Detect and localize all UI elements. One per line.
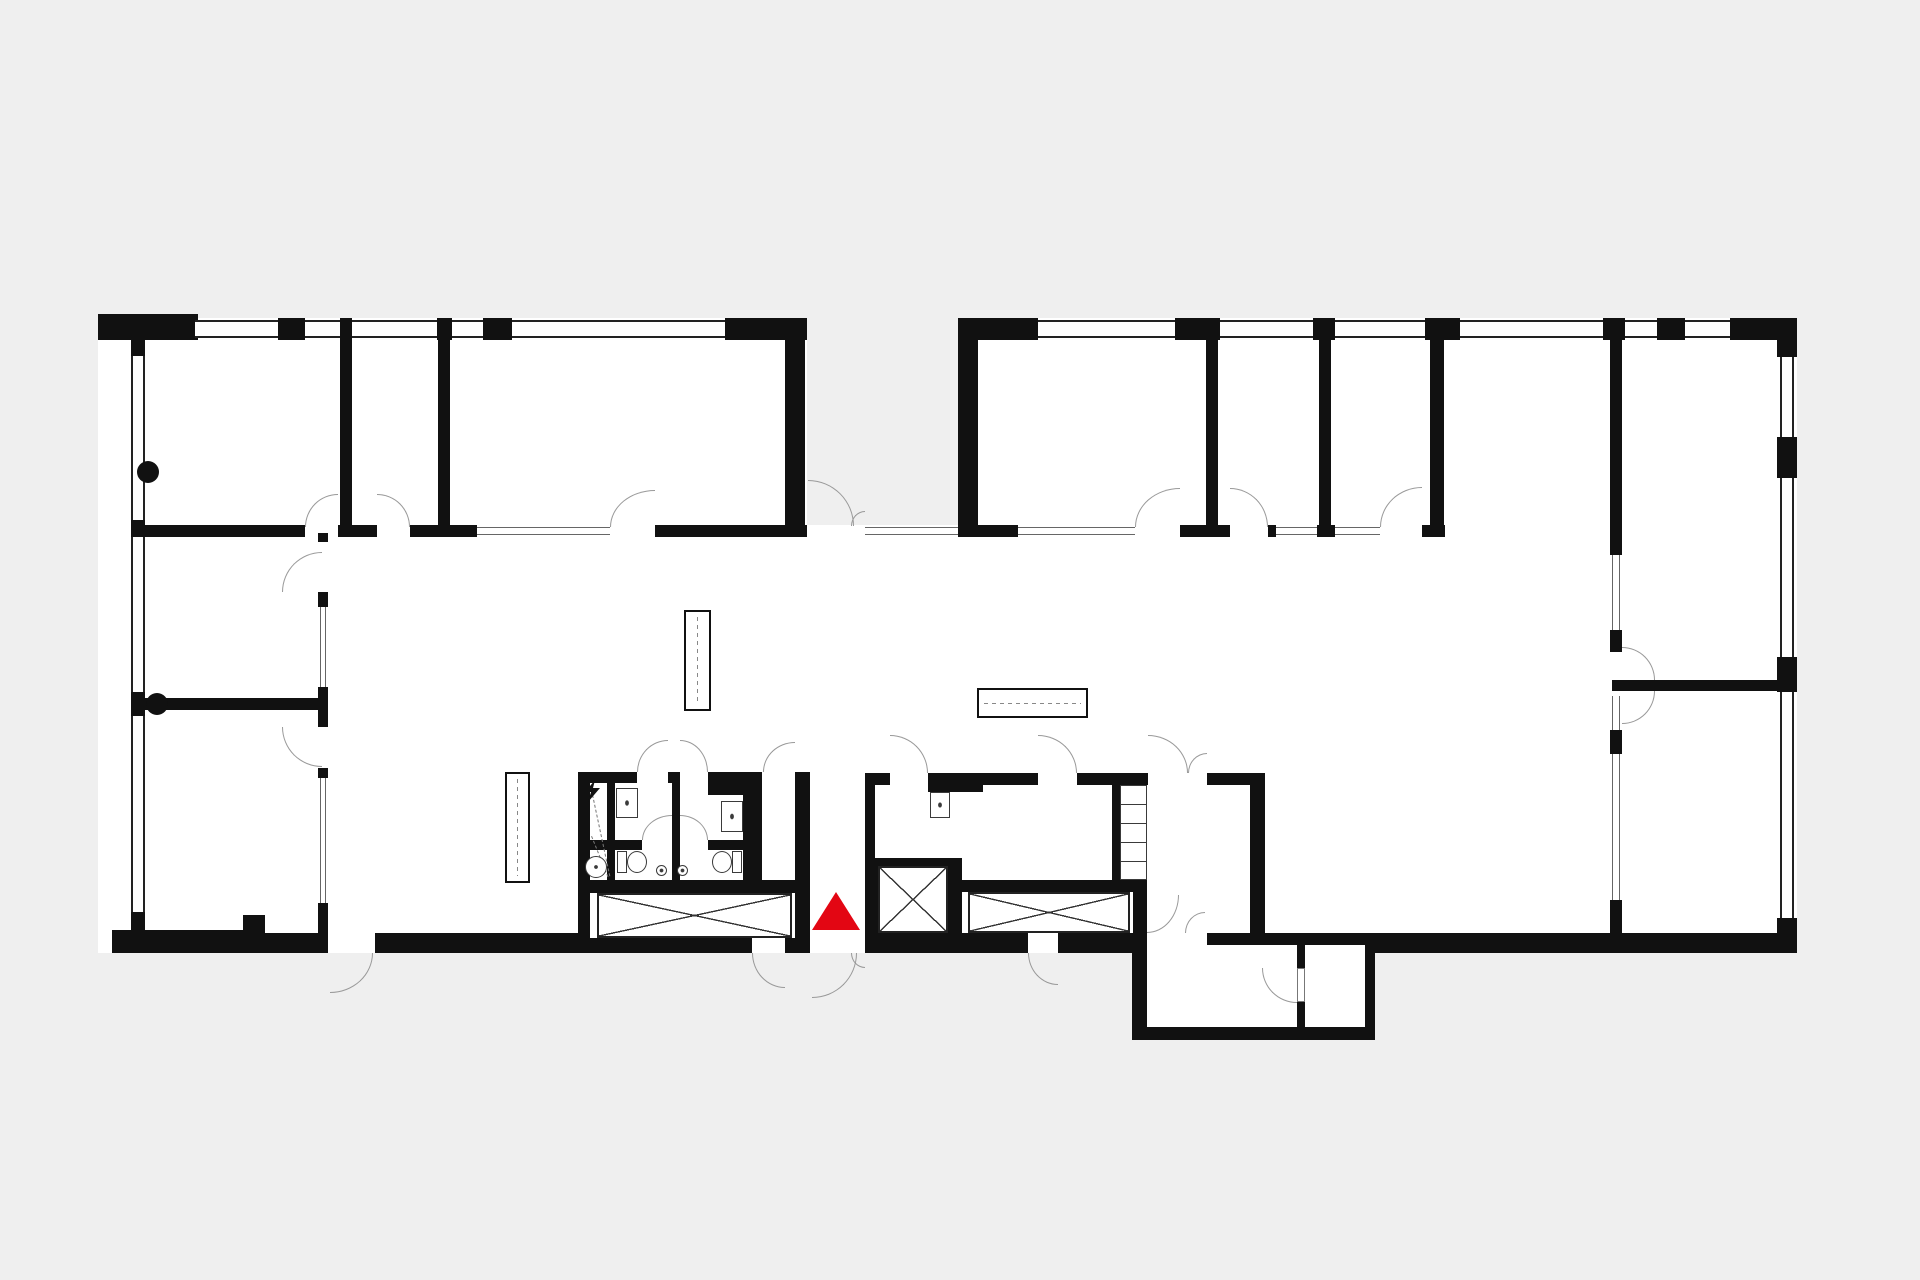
shelf-unit-icon	[1120, 785, 1147, 880]
exterior-window	[1780, 692, 1794, 918]
corridor-wall	[958, 525, 1018, 537]
partition-wall	[958, 340, 978, 525]
toilet-tank-icon	[732, 851, 742, 873]
wall-segment	[785, 938, 795, 953]
partition-wall	[318, 687, 328, 727]
partition-wall	[1430, 340, 1444, 525]
wall-segment	[1777, 437, 1797, 478]
exterior-window	[1780, 478, 1794, 657]
column-dot-icon	[137, 461, 159, 483]
entrance-location-marker	[812, 892, 860, 930]
annex-floor	[1132, 933, 1375, 1040]
core-wall	[865, 773, 890, 785]
corridor-wall	[1422, 525, 1445, 537]
interior-glazing	[320, 778, 326, 903]
wall-segment	[1375, 933, 1797, 953]
meter-box-icon	[930, 792, 950, 818]
partition-wall	[318, 903, 328, 933]
bench-furniture	[684, 610, 711, 711]
wall-segment	[1207, 933, 1250, 945]
floor-plan	[0, 0, 1920, 1280]
elevator-cross-icon	[878, 866, 948, 933]
wall-segment	[483, 318, 512, 340]
wall-segment	[112, 930, 258, 953]
exterior-window	[195, 320, 278, 338]
exterior-window	[512, 320, 725, 338]
core-wall	[1133, 880, 1147, 933]
partition-wall	[785, 340, 805, 537]
column-dot-icon	[146, 693, 168, 715]
partition-wall	[318, 768, 328, 778]
corridor-wall	[1268, 525, 1276, 537]
wc-core-wall	[672, 840, 680, 850]
wall-segment	[1175, 318, 1220, 340]
stair-cross-icon	[968, 892, 1130, 933]
exit-door-swing	[330, 953, 373, 993]
wall-segment	[1777, 657, 1797, 692]
door-leaf	[1297, 968, 1305, 1002]
corridor-wall	[410, 525, 477, 537]
corridor-wall	[338, 525, 377, 537]
core-wall	[1077, 773, 1148, 785]
exterior-window	[131, 356, 145, 520]
wall-segment	[98, 314, 198, 340]
electrical-bolt-icon	[583, 780, 603, 802]
elevator-wall	[948, 858, 962, 952]
partition-wall	[1610, 340, 1622, 555]
wc-core-wall	[708, 840, 762, 850]
interior-glazing	[1018, 527, 1135, 535]
exterior-window	[131, 537, 145, 692]
round-basin-icon	[585, 856, 607, 878]
interior-glazing	[1276, 527, 1317, 535]
toilet-bowl-icon	[627, 851, 647, 873]
partition-wall	[1206, 340, 1218, 525]
wall-segment	[725, 318, 807, 340]
wall-segment	[1657, 318, 1685, 340]
wall-segment	[1313, 318, 1335, 340]
partition-wall	[340, 340, 352, 525]
washbasin-icon	[721, 801, 743, 832]
exit-door-swing	[752, 953, 785, 988]
partition-wall	[438, 340, 450, 525]
exterior-window	[452, 320, 483, 338]
partition-wall	[1612, 680, 1777, 691]
core-wall	[928, 773, 983, 792]
wall-segment	[1425, 318, 1460, 340]
exterior-window	[352, 320, 437, 338]
wall-segment	[1603, 318, 1625, 340]
wall-segment	[1058, 933, 1132, 953]
floor-drain-icon	[677, 865, 688, 876]
wall-segment	[340, 318, 352, 340]
exit-door-swing	[1028, 953, 1058, 985]
wall-segment	[1777, 318, 1797, 357]
wc-core-wall	[590, 880, 795, 893]
exterior-window	[1460, 320, 1603, 338]
toilet-tank-icon	[617, 851, 627, 873]
exterior-window	[1625, 320, 1657, 338]
wall-segment	[958, 318, 1038, 340]
interior-glazing	[865, 527, 958, 535]
exterior-window	[131, 716, 145, 912]
partition-wall	[318, 592, 328, 607]
bench-furniture	[505, 772, 530, 883]
exterior-window	[1335, 320, 1425, 338]
wc-core-wall	[795, 772, 810, 953]
wall-segment	[258, 933, 328, 953]
corridor-wall	[137, 525, 305, 537]
elevator-wall	[865, 870, 878, 952]
corridor-wall	[1317, 525, 1335, 537]
washbasin-icon	[616, 788, 638, 818]
interior-glazing	[320, 607, 326, 687]
annex-wall	[1365, 933, 1375, 1040]
partition-wall	[1610, 900, 1622, 933]
core-wall	[1112, 785, 1120, 880]
wall-segment	[437, 318, 452, 340]
wc-core-wall	[590, 840, 642, 850]
wc-core-wall	[668, 772, 680, 783]
wall-segment	[131, 340, 145, 356]
annex-wall	[1132, 933, 1147, 1040]
interior-glazing	[1612, 696, 1620, 730]
wall-segment	[278, 318, 305, 340]
interior-glazing	[1335, 527, 1380, 535]
wall-segment	[375, 933, 578, 953]
partition-wall	[1319, 340, 1331, 525]
exterior-window	[1685, 320, 1730, 338]
partition-wall	[1610, 730, 1622, 754]
exterior-window	[1780, 357, 1794, 437]
wall-segment	[578, 938, 752, 953]
wall-segment	[865, 933, 1028, 953]
core-wall	[1250, 773, 1265, 933]
interior-glazing	[1612, 555, 1620, 630]
toilet-bowl-icon	[712, 851, 732, 873]
interior-glazing	[477, 527, 610, 535]
corridor-wall	[1180, 525, 1230, 537]
void-cross-icon	[597, 893, 792, 938]
corridor-wall	[655, 525, 807, 537]
wc-core-wall	[743, 783, 762, 880]
exterior-window	[305, 320, 340, 338]
exterior-window	[1220, 320, 1313, 338]
floor-drain-icon	[656, 865, 667, 876]
entrance-door-swing	[812, 953, 857, 998]
exterior-window	[1038, 320, 1175, 338]
core-wall	[948, 880, 1147, 892]
interior-glazing	[1612, 754, 1620, 900]
partition-wall	[318, 533, 328, 542]
annex-wall	[1297, 933, 1305, 968]
annex-wall	[1132, 1027, 1375, 1040]
partition-wall	[1610, 630, 1622, 652]
bench-furniture	[977, 688, 1088, 718]
